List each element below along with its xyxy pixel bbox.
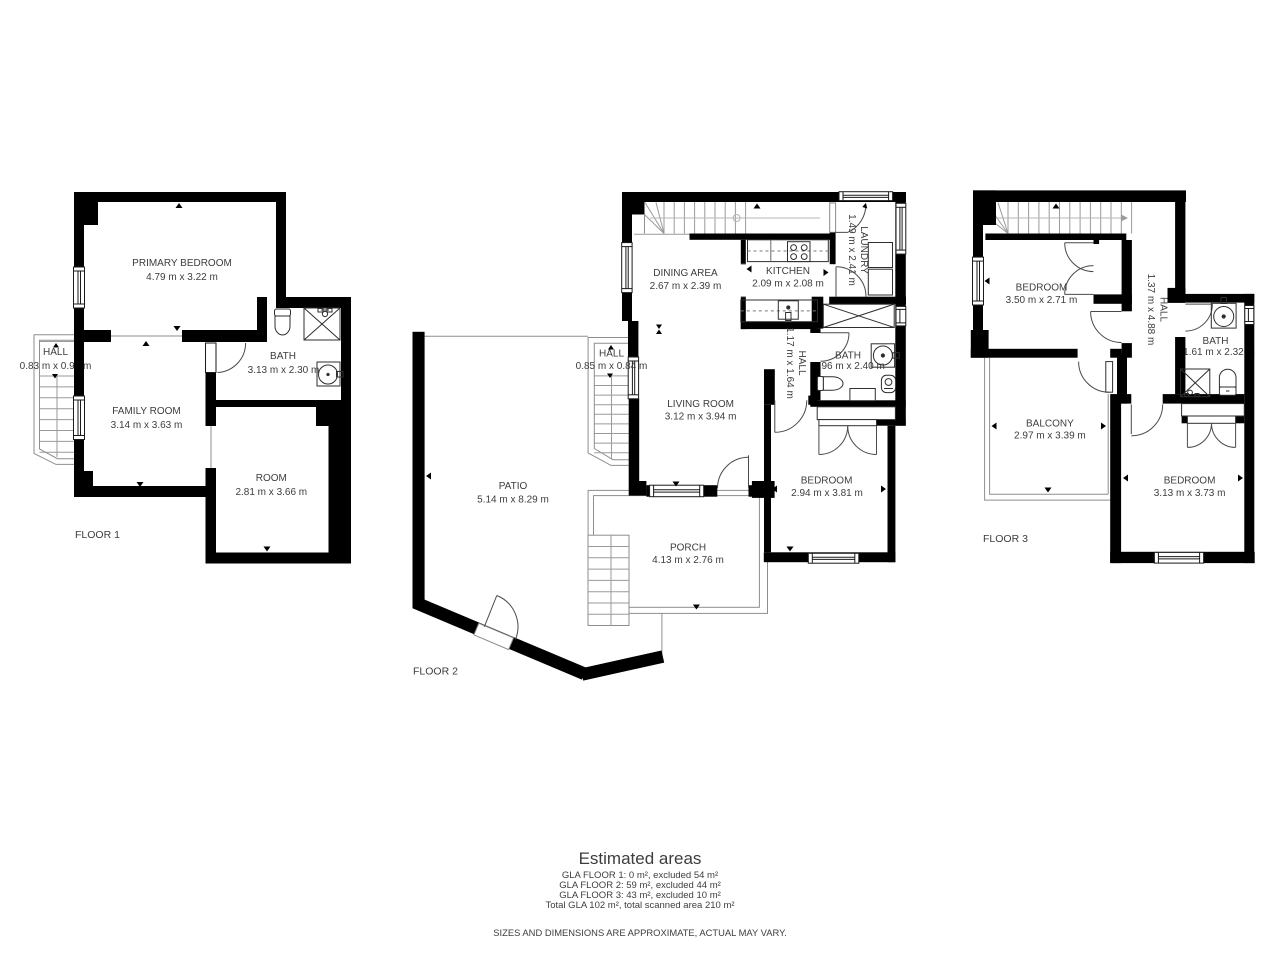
svg-text:2.67 m x 2.39 m: 2.67 m x 2.39 m [650,281,722,292]
svg-text:3.14 m x 3.63 m: 3.14 m x 3.63 m [111,420,183,431]
svg-text:DINING AREA: DINING AREA [653,268,718,279]
svg-text:BEDROOM: BEDROOM [1016,283,1068,294]
svg-text:1.37 m x 4.88 m: 1.37 m x 4.88 m [1145,274,1156,346]
svg-text:1.17 m x 1.64 m: 1.17 m x 1.64 m [784,327,795,399]
svg-text:Estimated areas: Estimated areas [579,849,702,868]
svg-text:1.49 m x 2.41 m: 1.49 m x 2.41 m [846,214,857,286]
svg-text:3.13 m x 2.30 m: 3.13 m x 2.30 m [248,365,320,376]
svg-text:FAMILY ROOM: FAMILY ROOM [112,406,181,417]
svg-text:HALL: HALL [1158,297,1169,322]
svg-text:HALL: HALL [796,350,807,375]
svg-text:LAUNDRY: LAUNDRY [858,226,869,274]
svg-text:3.50 m x 2.71 m: 3.50 m x 2.71 m [1006,295,1078,306]
svg-text:PRIMARY BEDROOM: PRIMARY BEDROOM [132,258,232,269]
svg-text:HALL: HALL [599,349,624,360]
svg-text:1.96 m x 2.40 m: 1.96 m x 2.40 m [813,361,885,372]
svg-text:PATIO: PATIO [499,481,528,492]
svg-text:FLOOR 3: FLOOR 3 [983,533,1028,545]
svg-text:ROOM: ROOM [256,473,287,484]
svg-text:FLOOR 1: FLOOR 1 [75,529,120,541]
svg-text:SIZES AND DIMENSIONS ARE APPRO: SIZES AND DIMENSIONS ARE APPROXIMATE, AC… [493,927,786,938]
svg-text:BEDROOM: BEDROOM [801,476,853,487]
svg-text:BALCONY: BALCONY [1026,419,1074,430]
svg-text:2.09 m x 2.08 m: 2.09 m x 2.08 m [752,279,824,290]
svg-text:BATH: BATH [835,351,861,362]
svg-text:0.85 m x 0.84 m: 0.85 m x 0.84 m [576,361,648,372]
svg-text:Total GLA 102 m², total scanne: Total GLA 102 m², total scanned area 210… [545,900,734,911]
svg-text:FLOOR 2: FLOOR 2 [413,666,458,678]
svg-text:BATH: BATH [270,351,296,362]
svg-text:KITCHEN: KITCHEN [766,266,810,277]
svg-text:HALL: HALL [43,347,68,358]
svg-text:1.61 m x 2.32 m: 1.61 m x 2.32 m [1183,347,1255,358]
svg-text:5.14 m x 8.29 m: 5.14 m x 8.29 m [477,495,549,506]
svg-text:4.79 m x 3.22 m: 4.79 m x 3.22 m [146,272,218,283]
svg-text:2.81 m x 3.66 m: 2.81 m x 3.66 m [235,487,307,498]
svg-text:3.12 m x 3.94 m: 3.12 m x 3.94 m [665,412,737,423]
svg-text:PORCH: PORCH [670,543,706,554]
svg-text:LIVING ROOM: LIVING ROOM [667,399,734,410]
svg-text:BATH: BATH [1203,336,1229,347]
svg-text:3.13 m x 3.73 m: 3.13 m x 3.73 m [1154,488,1226,499]
svg-text:BEDROOM: BEDROOM [1164,476,1216,487]
svg-text:2.97 m x 3.39 m: 2.97 m x 3.39 m [1014,431,1086,442]
svg-text:2.94 m x 3.81 m: 2.94 m x 3.81 m [791,488,863,499]
svg-text:4.13 m x 2.76 m: 4.13 m x 2.76 m [652,555,724,566]
